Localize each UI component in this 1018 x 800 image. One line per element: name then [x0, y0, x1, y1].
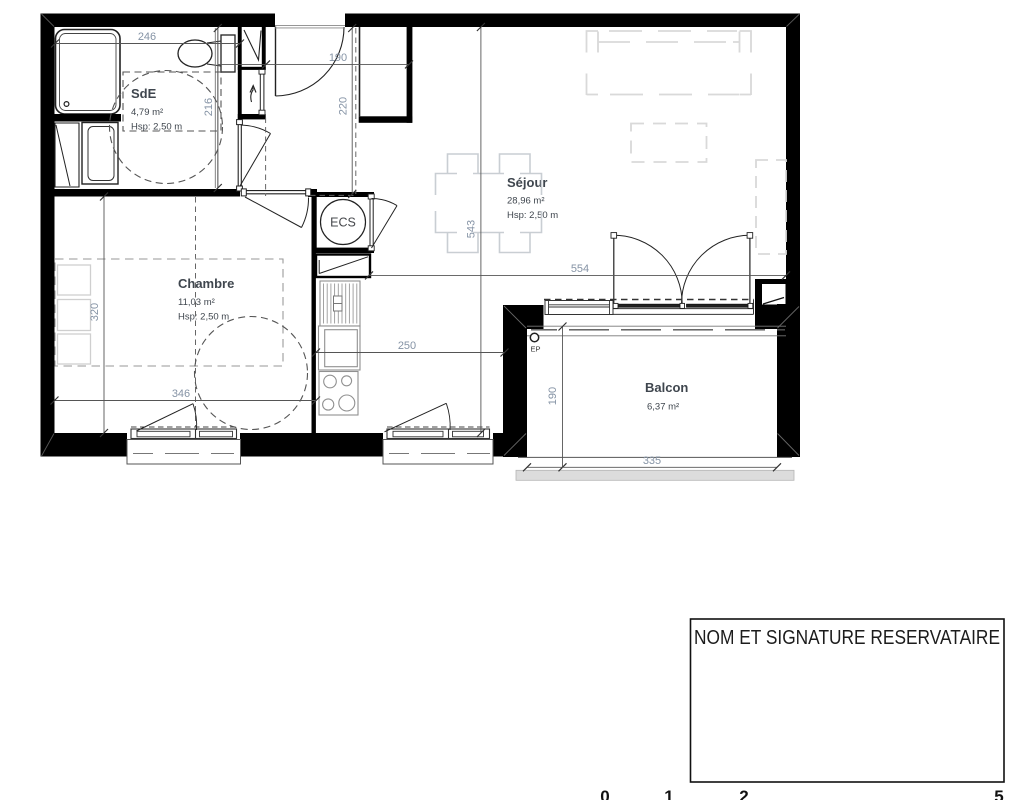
- svg-text:5: 5: [994, 787, 1003, 800]
- svg-text:EP: EP: [531, 345, 541, 354]
- svg-text:28,96 m²: 28,96 m²: [507, 196, 545, 207]
- svg-text:ECS: ECS: [330, 216, 356, 230]
- svg-text:246: 246: [138, 31, 156, 43]
- svg-text:216: 216: [203, 98, 215, 116]
- svg-text:554: 554: [571, 263, 589, 275]
- svg-text:320: 320: [89, 303, 101, 321]
- svg-text:250: 250: [398, 340, 416, 352]
- svg-text:Hsp: 2,50 m: Hsp: 2,50 m: [507, 210, 558, 221]
- svg-text:543: 543: [466, 220, 478, 238]
- svg-text:2: 2: [739, 787, 748, 800]
- svg-text:Balcon: Balcon: [645, 380, 688, 395]
- svg-text:Chambre: Chambre: [178, 276, 234, 291]
- svg-text:Hsp: 2,50 m: Hsp: 2,50 m: [131, 122, 182, 133]
- svg-text:NOM ET SIGNATURE RESERVATAIRE: NOM ET SIGNATURE RESERVATAIRE: [694, 626, 1000, 649]
- svg-text:190: 190: [329, 52, 347, 64]
- svg-text:SdE: SdE: [131, 86, 157, 101]
- svg-text:346: 346: [172, 388, 190, 400]
- svg-text:4,79 m²: 4,79 m²: [131, 107, 163, 118]
- svg-text:1: 1: [664, 787, 673, 800]
- svg-text:220: 220: [338, 97, 350, 115]
- svg-text:335: 335: [643, 455, 661, 467]
- svg-text:Hsp: 2,50 m: Hsp: 2,50 m: [178, 312, 229, 323]
- svg-text:190: 190: [547, 387, 559, 405]
- svg-text:6,37 m²: 6,37 m²: [647, 402, 679, 413]
- svg-text:11,03 m²: 11,03 m²: [178, 297, 215, 308]
- svg-text:0: 0: [600, 787, 609, 800]
